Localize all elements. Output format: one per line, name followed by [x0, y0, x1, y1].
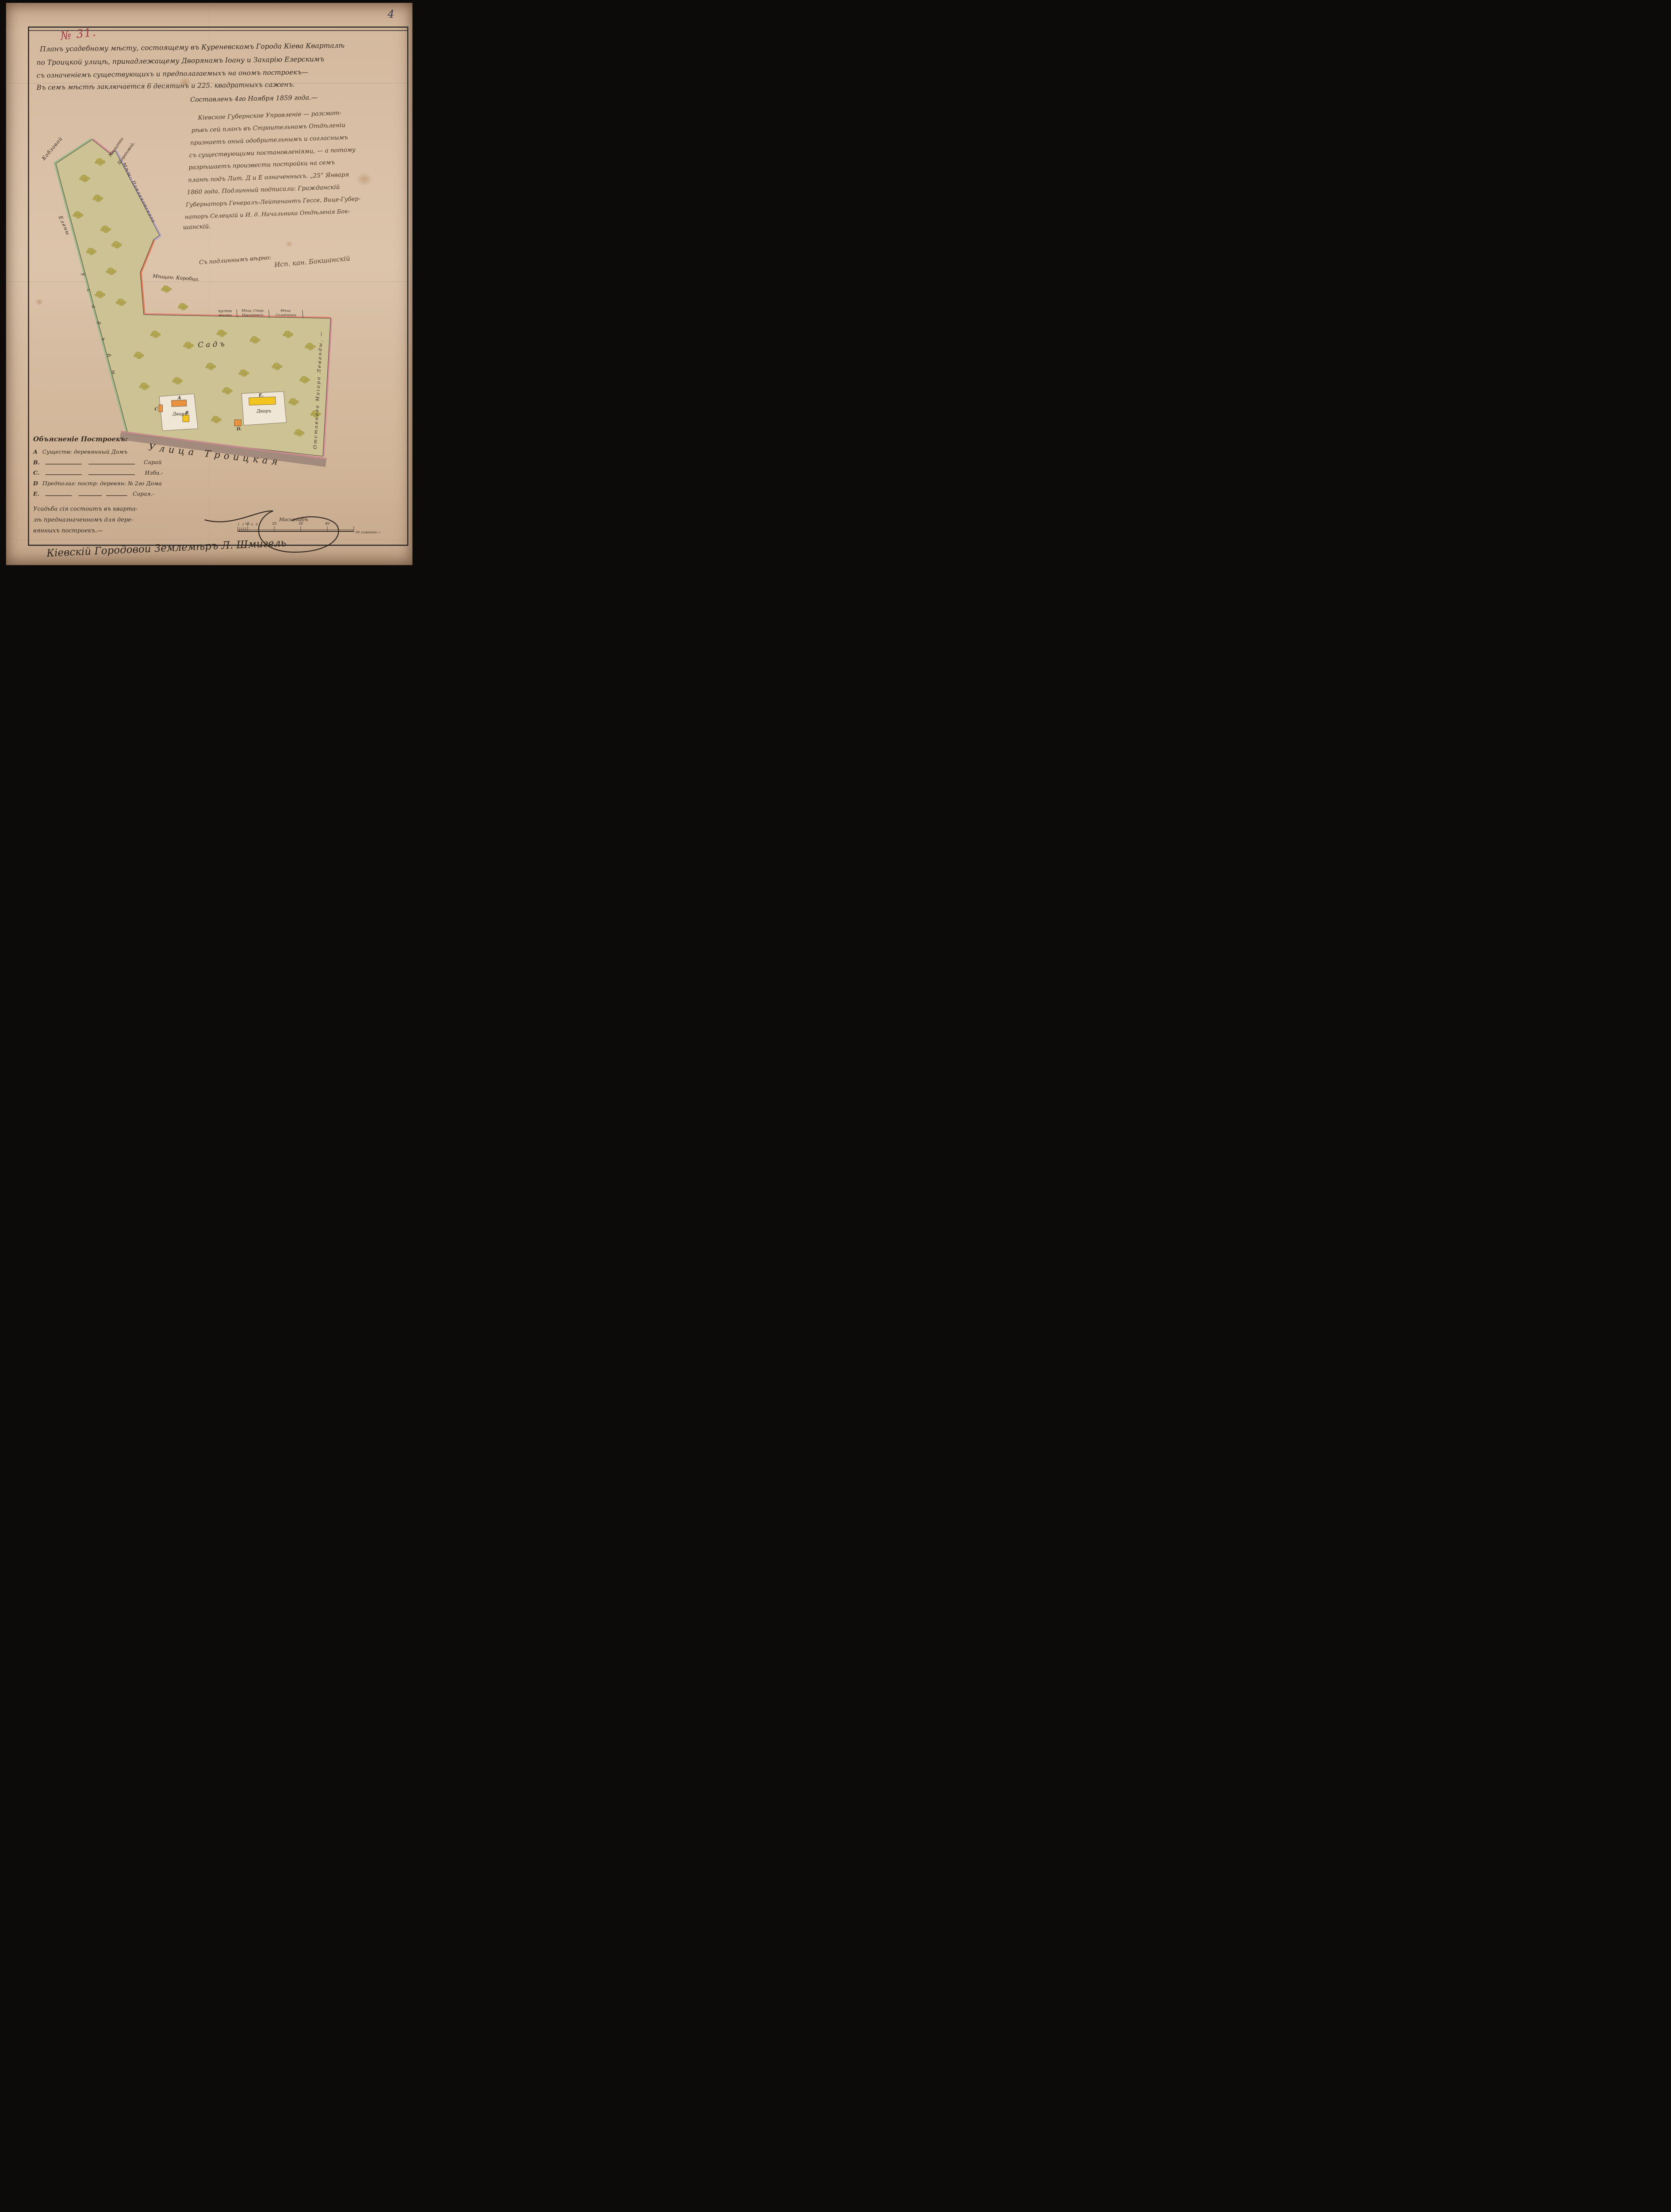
vacant-lot-label-1: пустое	[218, 309, 232, 313]
legend-note-line: вянныхъ построекъ.—	[33, 527, 103, 534]
legend-note-line: лѣ предназначенномъ для дере-	[33, 516, 133, 523]
page-corner-number: 4	[387, 8, 394, 20]
building-a	[172, 400, 187, 407]
legend-row-d: D Предполаг: постр: деревян: № 2го Дома	[33, 480, 162, 487]
neighbor-pavlikovsky2-label-1: Мѣщ: Стар:	[241, 309, 264, 313]
legend-dash	[106, 495, 127, 496]
legend-row-e: E. Сарая.-	[33, 491, 39, 497]
neighbor-left-surname-label: Кобзовой	[40, 135, 64, 162]
scale-tick-20: 20	[272, 522, 276, 526]
legend-letter: D	[33, 480, 38, 487]
legend-text: Сарай	[144, 459, 162, 466]
legend-letter: E.	[33, 491, 39, 497]
legend-title: Объясненіе Построекъ:	[33, 435, 128, 443]
building-d	[234, 420, 241, 426]
building-c	[159, 405, 163, 412]
yard1-label: Дворъ	[172, 412, 187, 417]
scale-tick-10: 10.	[245, 522, 250, 526]
vacant-lot-label-2: мѣсто	[218, 314, 232, 318]
neighbor-pavlikovsky2-label-2: Павликовск:	[241, 313, 264, 317]
resolution-line: шанскій.	[183, 223, 211, 230]
legend-letter: A	[33, 449, 38, 455]
legend-row-a: A Существ: деревянный Домъ	[33, 449, 127, 455]
garden-label: Садъ	[198, 340, 227, 349]
legend-text: Существ: деревянный Домъ	[42, 449, 127, 455]
neighbor-solodchenko-label-2: Солодченка	[276, 313, 296, 317]
scale-tick-40: 40	[325, 522, 330, 526]
legend-row-c: C. Изба.-	[33, 469, 39, 476]
legend-dash	[46, 474, 82, 475]
scale-unit-label: 50 саженей.—	[356, 530, 381, 534]
building-e-label: Е.	[258, 393, 264, 398]
legend-text: Сарая.-	[133, 491, 154, 497]
neighbor-solodchenko-label-1: Мѣщ:	[280, 309, 291, 313]
scale-title: Масштабъ	[279, 517, 308, 522]
legend-letter: B.	[33, 459, 40, 466]
legend-dash	[46, 495, 72, 496]
building-d-label: D.	[236, 427, 241, 432]
legend-dash	[88, 464, 135, 465]
document-page: А В С D. Е. Дворъ Дворъ Кобзовой Елены у…	[0, 0, 418, 571]
yard-right	[241, 392, 286, 425]
building-e	[249, 397, 276, 405]
building-a-label: А	[177, 396, 181, 401]
building-c-label: С	[155, 407, 158, 412]
legend-note-line: Усадьба сія состоитъ въ кварта-	[33, 506, 138, 512]
legend-dash	[46, 464, 82, 465]
legend-text: Предполаг: постр: деревян: № 2го Дома	[42, 480, 162, 487]
legend-row-b: B. Сарай	[33, 459, 40, 466]
legend-dash	[79, 495, 102, 496]
legend-dash	[88, 474, 135, 475]
legend-letter: C.	[33, 469, 39, 476]
legend-text: Изба.-	[145, 469, 163, 476]
scanned-document-stage: А В С D. Е. Дворъ Дворъ Кобзовой Елены у…	[0, 0, 418, 571]
yard2-label: Дворъ	[256, 409, 271, 414]
neighbor-korobets-label: Мѣщан: Коробца.	[152, 273, 200, 282]
